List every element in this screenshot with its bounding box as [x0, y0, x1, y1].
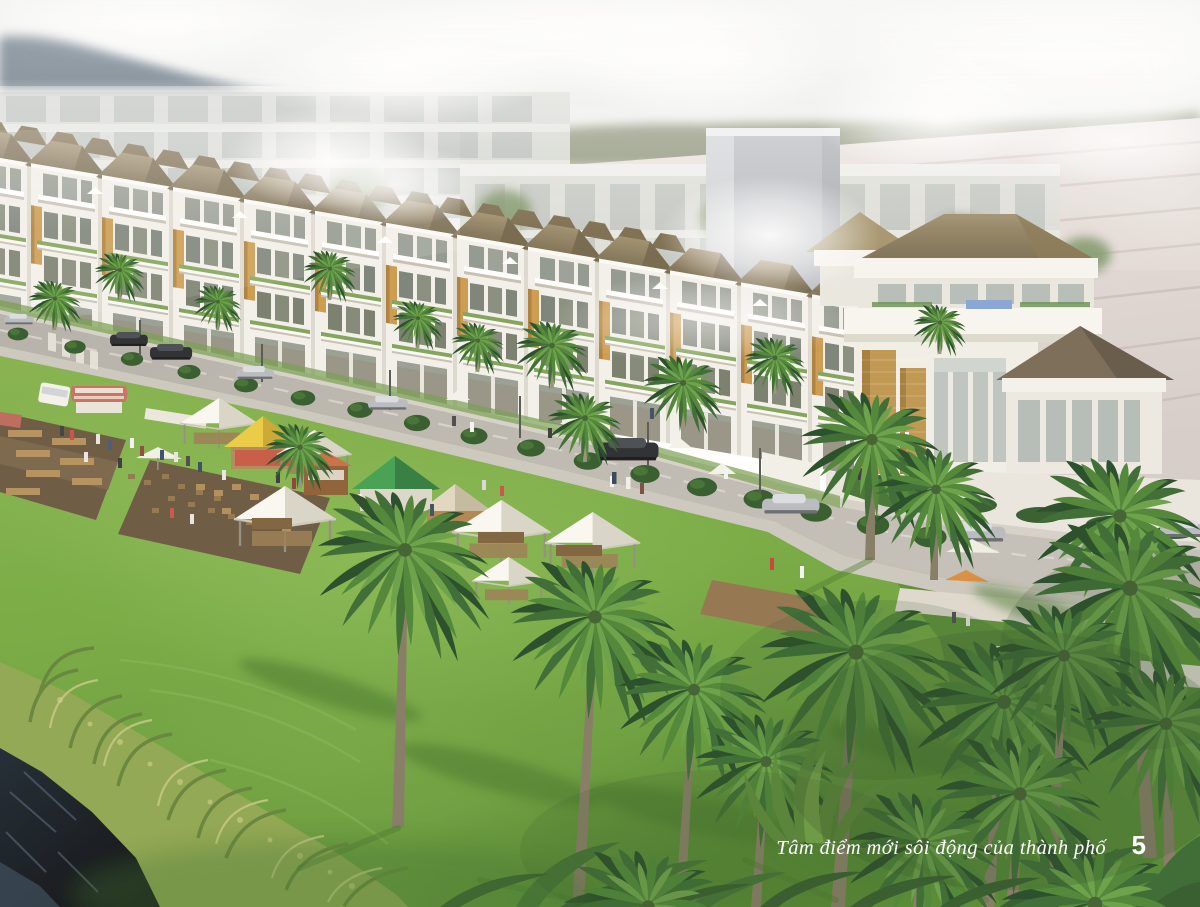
- svg-text:5: 5: [1132, 830, 1146, 860]
- svg-text:Tâm điểm mới sôi động của thàn: Tâm điểm mới sôi động của thành phố: [776, 837, 1107, 859]
